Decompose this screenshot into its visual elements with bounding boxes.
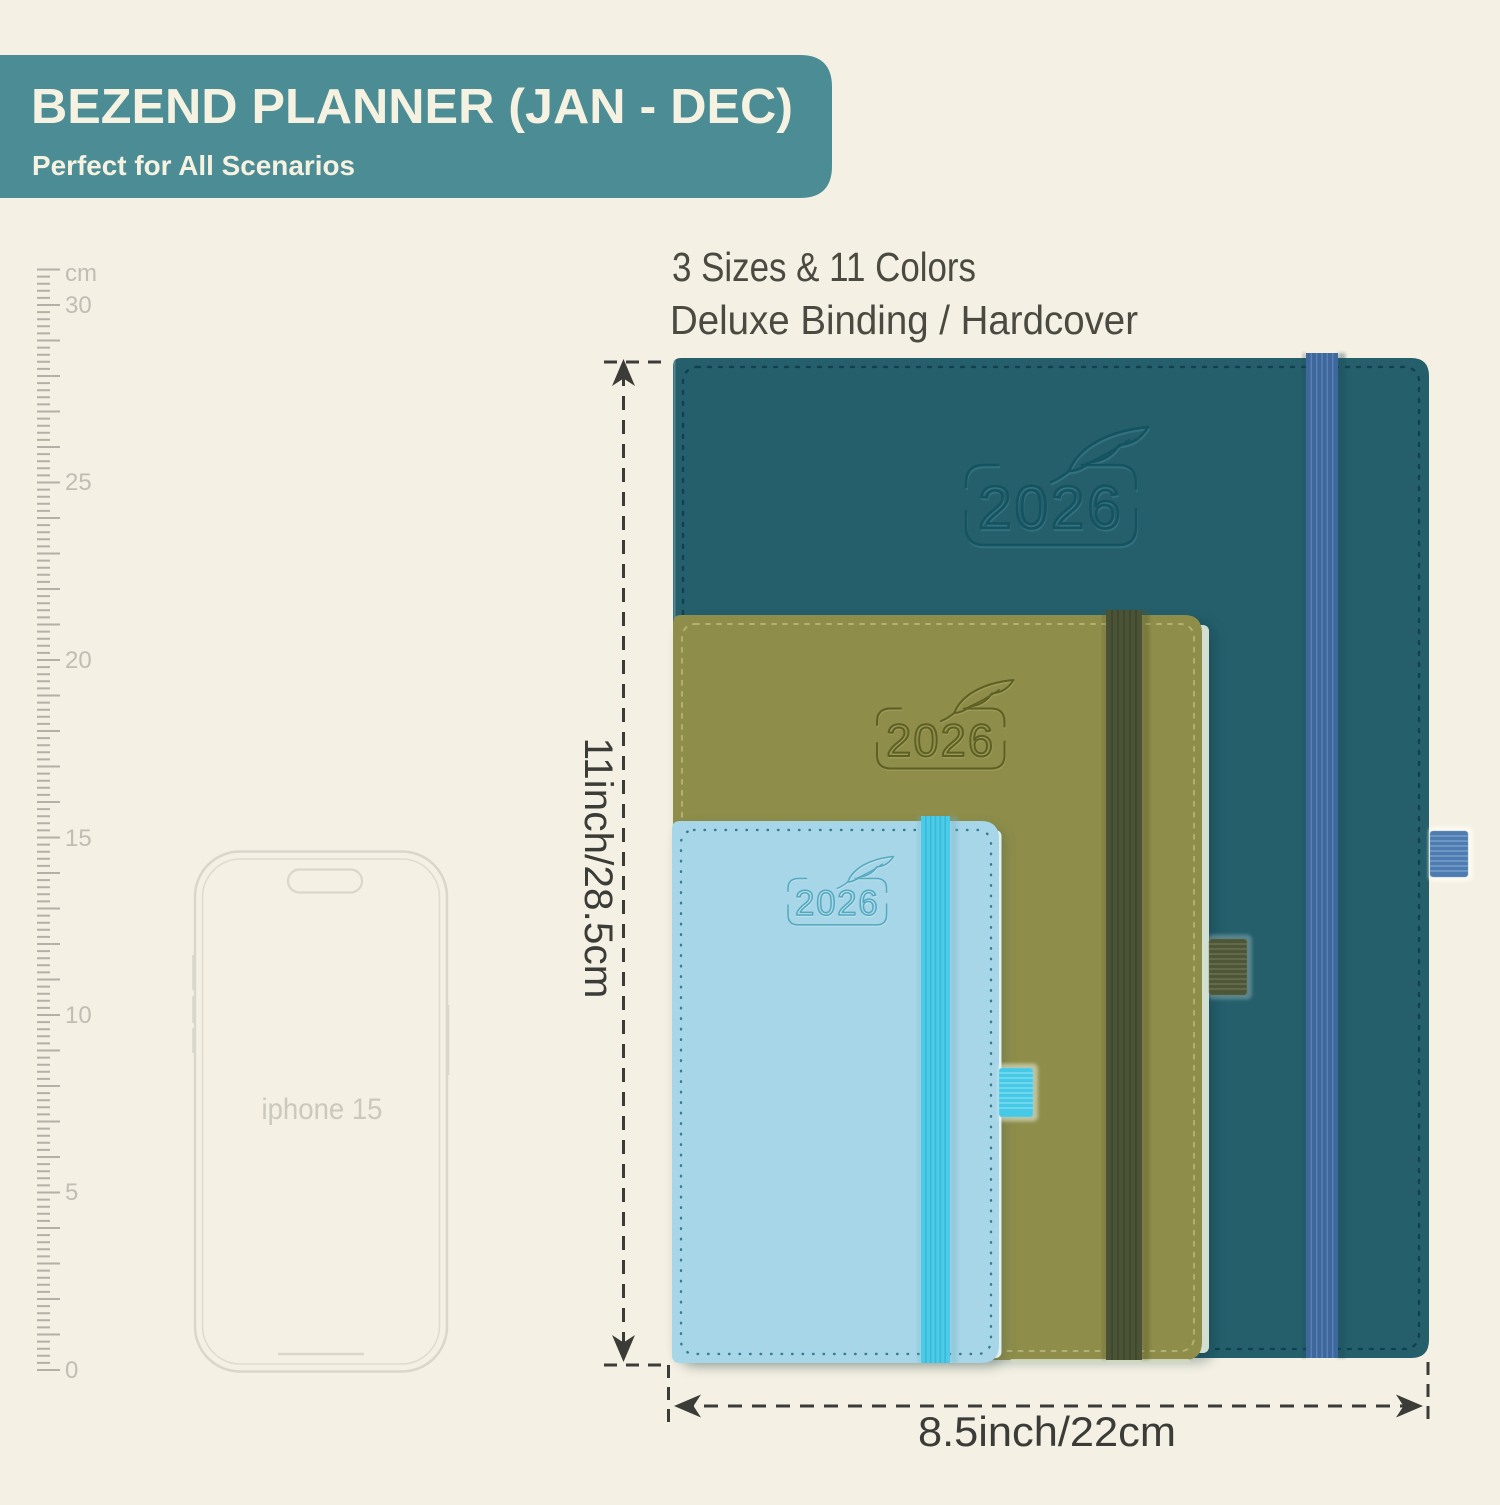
svg-text:25: 25 bbox=[65, 469, 92, 496]
svg-text:20: 20 bbox=[65, 647, 92, 674]
svg-text:3 Sizes & 11 Colors: 3 Sizes & 11 Colors bbox=[672, 244, 976, 290]
svg-text:30: 30 bbox=[65, 292, 92, 319]
svg-text:Perfect for All Scenarios: Perfect for All Scenarios bbox=[32, 150, 355, 181]
svg-text:2026: 2026 bbox=[978, 474, 1123, 541]
svg-text:BEZEND PLANNER (JAN - DEC): BEZEND PLANNER (JAN - DEC) bbox=[31, 80, 793, 134]
svg-text:5: 5 bbox=[65, 1179, 78, 1206]
svg-text:10: 10 bbox=[65, 1002, 92, 1029]
svg-text:15: 15 bbox=[65, 825, 92, 852]
svg-text:Deluxe Binding / Hardcover: Deluxe Binding / Hardcover bbox=[670, 297, 1138, 343]
svg-text:2026: 2026 bbox=[886, 715, 995, 766]
svg-text:2026: 2026 bbox=[795, 884, 879, 923]
svg-text:iphone 15: iphone 15 bbox=[262, 1093, 383, 1126]
svg-text:11inch/28.5cm: 11inch/28.5cm bbox=[576, 738, 620, 999]
svg-text:0: 0 bbox=[65, 1357, 78, 1384]
svg-text:cm: cm bbox=[65, 260, 97, 287]
svg-text:8.5inch/22cm: 8.5inch/22cm bbox=[918, 1408, 1176, 1455]
